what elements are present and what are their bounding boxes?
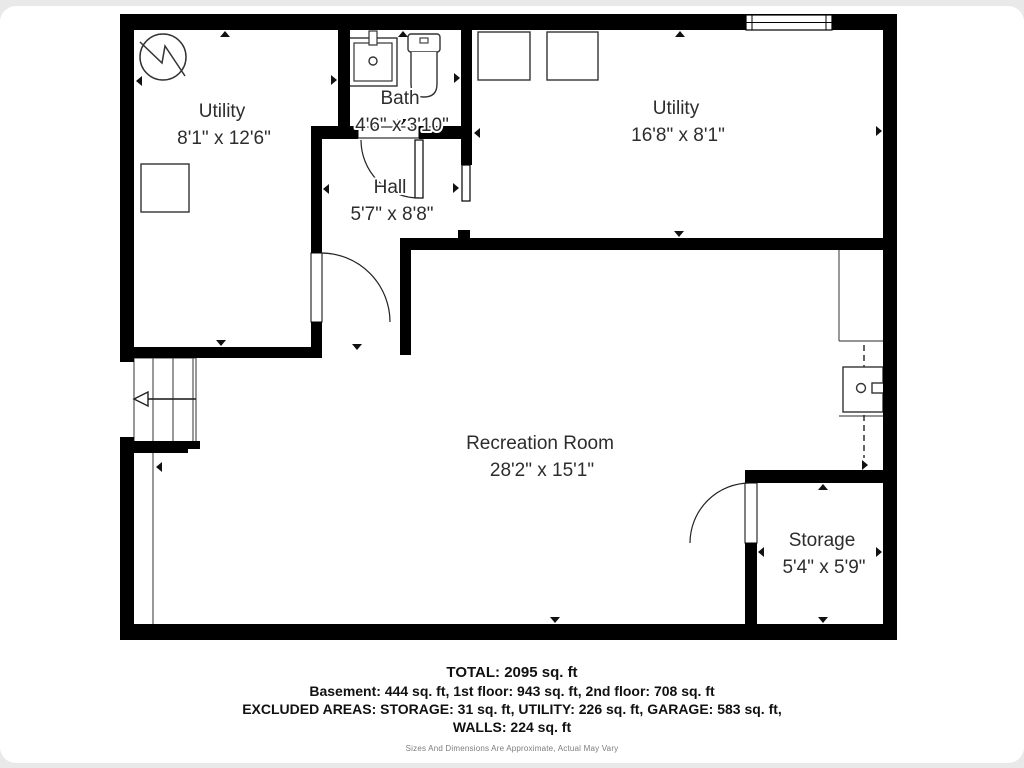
room-label: Utility	[199, 101, 246, 122]
wall-segment	[400, 238, 411, 355]
total-area-text: TOTAL: 2095 sq. ft	[0, 664, 1024, 682]
wall-segment	[120, 14, 134, 362]
door-leaf	[415, 140, 423, 198]
wall-segment	[400, 238, 897, 250]
dimension-marker	[474, 128, 480, 138]
room-dimensions: 28'2" x 15'1"	[490, 460, 594, 481]
room-labels-layer: Utility8'1" x 12'6"Bath4'6" x 3'10"Hall5…	[177, 88, 865, 578]
wall-segment	[184, 441, 200, 449]
bath-sink-faucet	[369, 31, 377, 45]
room-dimensions: 4'6" x 3'10"	[355, 115, 449, 136]
wall-segment	[883, 14, 897, 640]
dimension-marker	[674, 231, 684, 237]
dimension-marker	[818, 484, 828, 490]
dimension-marker	[331, 75, 337, 85]
floor-plan-drawing: Utility8'1" x 12'6"Bath4'6" x 3'10"Hall5…	[0, 0, 1024, 768]
door-opening	[745, 483, 757, 543]
room-label: Recreation Room	[466, 433, 614, 454]
door-swing-arc	[690, 483, 750, 543]
stair-direction-arrowhead	[134, 392, 148, 406]
dimension-marker	[550, 617, 560, 623]
dimension-marker	[323, 184, 329, 194]
wall-segment	[745, 543, 757, 624]
floor-plan-page: { "page": { "background": "#e9e9e9", "ca…	[0, 0, 1024, 768]
wall-segment	[120, 437, 134, 640]
room-dimensions: 5'4" x 5'9"	[782, 557, 865, 578]
dimension-marker	[220, 31, 230, 37]
wall-segment	[745, 470, 897, 483]
dimension-marker	[675, 31, 685, 37]
dimension-markers-layer	[136, 31, 882, 623]
excluded-areas-text: EXCLUDED AREAS: STORAGE: 31 sq. ft, UTIL…	[0, 700, 1024, 718]
disclaimer-text: Sizes And Dimensions Are Approximate, Ac…	[0, 744, 1024, 753]
dimension-marker	[352, 344, 362, 350]
wall-segment	[120, 624, 897, 640]
wall-segment	[311, 139, 322, 253]
dimension-marker	[136, 76, 142, 86]
door-opening	[311, 253, 322, 322]
dimension-marker	[216, 340, 226, 346]
room-label: Bath	[380, 88, 419, 109]
door-swing-arc	[321, 253, 390, 322]
wall-segment	[311, 126, 358, 139]
dimension-marker	[876, 126, 882, 136]
room-label: Utility	[653, 98, 700, 119]
room-label: Hall	[374, 177, 407, 198]
dimension-marker	[454, 73, 460, 83]
wall-segment	[461, 30, 472, 165]
room-label: Storage	[789, 530, 856, 551]
area-summary-footer: TOTAL: 2095 sq. ft Basement: 444 sq. ft,…	[0, 664, 1024, 753]
dimension-marker	[156, 462, 162, 472]
room-dimensions: 8'1" x 12'6"	[177, 128, 271, 149]
dimension-marker	[818, 617, 828, 623]
door-leaf	[462, 165, 470, 201]
wall-segment	[122, 441, 188, 453]
dimension-marker	[758, 547, 764, 557]
dimension-marker	[862, 460, 868, 470]
dimension-marker	[453, 183, 459, 193]
room-dimensions: 16'8" x 8'1"	[631, 125, 725, 146]
appliance-box	[141, 164, 189, 212]
room-dimensions: 5'7" x 8'8"	[350, 204, 433, 225]
dimension-marker	[398, 31, 408, 37]
wall-segment	[338, 30, 350, 137]
floor-areas-text: Basement: 444 sq. ft, 1st floor: 943 sq.…	[0, 682, 1024, 700]
walls-area-text: WALLS: 224 sq. ft	[0, 718, 1024, 736]
wall-segment	[122, 347, 322, 358]
appliance-box	[547, 32, 598, 80]
appliance-box	[478, 32, 530, 80]
wall-segment	[458, 230, 470, 239]
dimension-marker	[876, 547, 882, 557]
